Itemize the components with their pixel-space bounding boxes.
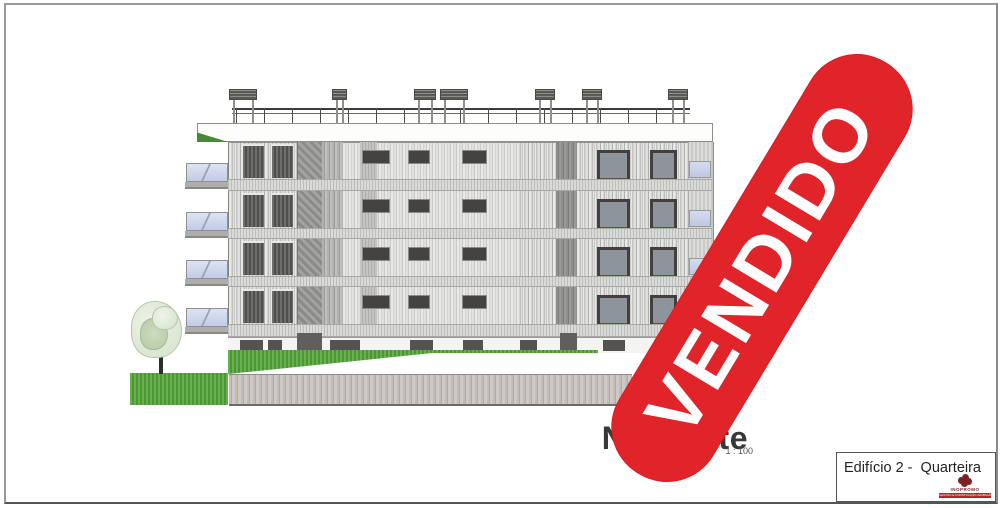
rooftop-structure-leg: [586, 100, 588, 123]
rooftop-structure: [582, 89, 602, 100]
elevation-scale: 1 : 100: [725, 446, 753, 456]
window-bay: [597, 247, 630, 279]
railing-post: [320, 108, 321, 123]
stair-core: [297, 142, 324, 352]
rooftop-structure-leg: [444, 100, 446, 123]
window: [362, 247, 390, 261]
window: [243, 193, 264, 227]
window: [243, 241, 264, 275]
railing-post: [656, 108, 657, 123]
ground-opening: [240, 340, 263, 351]
floor-slab-band: [228, 276, 712, 287]
rooftop-structure-leg: [683, 100, 685, 123]
ground-opening: [330, 340, 360, 351]
window: [272, 144, 293, 178]
facade-column: [322, 142, 343, 337]
balcony-glass: [186, 308, 228, 327]
balcony-glass: [186, 212, 228, 231]
rooftop-structure: [414, 89, 436, 100]
ground-opening: [603, 340, 625, 351]
window: [243, 144, 264, 178]
ground-core: [560, 333, 577, 352]
balcony-slab: [185, 182, 230, 189]
railing-post: [292, 108, 293, 123]
railing-post: [264, 108, 265, 123]
railing-post: [600, 108, 601, 123]
title-block: Edifício 2 - Quarteira INOPROMO GESTÃO E…: [836, 452, 996, 502]
balcony-slab: [185, 231, 230, 238]
balcony-slab: [185, 279, 230, 286]
window-bay: [597, 295, 630, 327]
window: [408, 199, 430, 213]
inopromo-logo: INOPROMO GESTÃO E CONSTRUÇÃO IMOBILIÁRIA: [939, 474, 991, 498]
logo-tree-icon: [957, 474, 973, 487]
window-bay: [650, 199, 677, 231]
window: [243, 289, 264, 323]
floor-slab-band: [228, 228, 712, 239]
floor-slab-band: [228, 179, 712, 191]
window: [272, 241, 293, 275]
railing-post: [376, 108, 377, 123]
grass-patch: [130, 373, 228, 405]
rooftop-structure-leg: [252, 100, 254, 123]
balcony-glass: [689, 161, 711, 178]
window: [462, 150, 487, 164]
window: [408, 247, 430, 261]
architectural-drawing-sheet: Nascente 1 : 100 VENDIDO Edifício 2 - Qu…: [0, 0, 1000, 508]
railing-post: [404, 108, 405, 123]
window: [362, 295, 390, 309]
facade-column-dark: [556, 142, 577, 352]
rooftop-structure-leg: [418, 100, 420, 123]
rooftop-structure-leg: [431, 100, 433, 123]
rooftop-structure-leg: [597, 100, 599, 123]
ground-opening: [268, 340, 282, 351]
railing-post: [572, 108, 573, 123]
railing-post: [348, 108, 349, 123]
window: [462, 247, 487, 261]
balcony-slab: [185, 327, 230, 334]
window: [408, 295, 430, 309]
roof-railing: [232, 108, 690, 110]
rooftop-structure: [535, 89, 555, 100]
railing-post: [236, 108, 237, 123]
railing-post: [544, 108, 545, 123]
window: [362, 150, 390, 164]
window-bay: [597, 199, 630, 231]
rooftop-structure: [332, 89, 347, 100]
ground-core: [297, 333, 322, 352]
window: [272, 193, 293, 227]
window: [408, 150, 430, 164]
tree-canopy-highlight: [152, 306, 178, 330]
ground-opening: [520, 340, 537, 351]
rooftop-structure-leg: [342, 100, 344, 123]
roof-parapet: [197, 123, 713, 142]
balcony-glass: [186, 163, 228, 182]
window-bay: [597, 150, 630, 182]
balcony-glass: [689, 210, 711, 227]
retaining-wall: [229, 374, 632, 406]
rooftop-structure: [229, 89, 257, 100]
rooftop-structure-leg: [539, 100, 541, 123]
rooftop-structure-leg: [672, 100, 674, 123]
railing-post: [516, 108, 517, 123]
rooftop-structure: [668, 89, 688, 100]
logo-name: INOPROMO: [939, 487, 991, 492]
window-bay: [650, 150, 677, 182]
window: [272, 289, 293, 323]
railing-post: [628, 108, 629, 123]
rooftop-structure-leg: [233, 100, 235, 123]
rooftop-structure-leg: [550, 100, 552, 123]
railing-post: [460, 108, 461, 123]
rooftop-structure-leg: [336, 100, 338, 123]
window: [462, 295, 487, 309]
window: [362, 199, 390, 213]
railing-post: [488, 108, 489, 123]
ground-opening: [410, 340, 433, 351]
logo-tagline: GESTÃO E CONSTRUÇÃO IMOBILIÁRIA: [939, 493, 991, 498]
rooftop-structure-leg: [463, 100, 465, 123]
window: [462, 199, 487, 213]
balcony-glass: [186, 260, 228, 279]
ground-opening: [463, 340, 483, 351]
rooftop-structure: [440, 89, 468, 100]
window-bay: [650, 247, 677, 279]
roof-railing-rail: [232, 113, 690, 114]
